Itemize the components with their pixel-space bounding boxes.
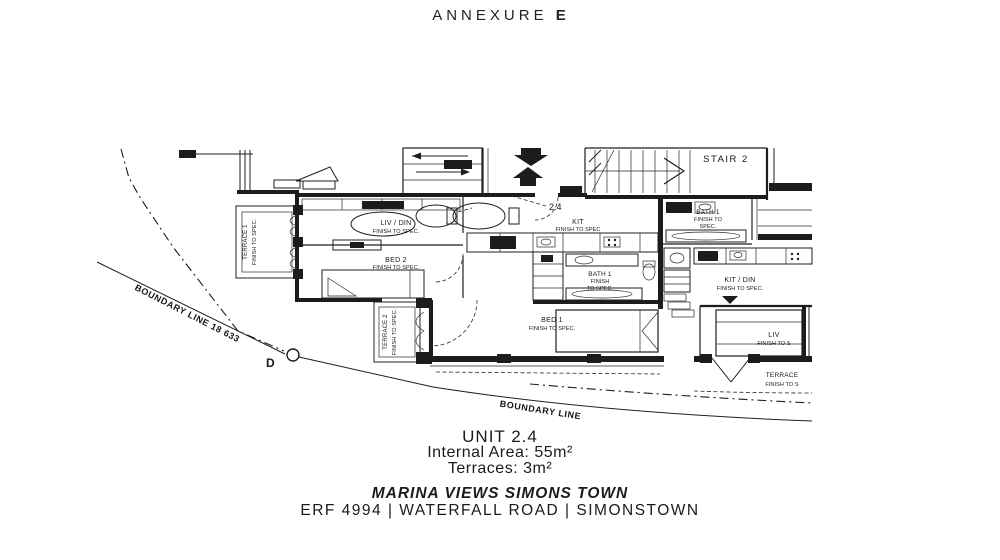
kit-din-label: KIT / DIN [724, 277, 755, 284]
survey-beacon [287, 349, 299, 361]
terrace-1-label: TERRACE 1 [243, 224, 249, 260]
terrace-1-spec: FINISH TO SPEC. [252, 218, 258, 265]
terrace-1: TERRACE 1 FINISH TO SPEC. [236, 205, 303, 279]
unit-summary: UNIT 2.4 Internal Area: 55m² Terraces: 3… [0, 429, 1000, 477]
room-bath-1-main: BATH 1 FINISH TO SPEC. [566, 254, 655, 300]
stair-2-label: STAIR 2 [703, 154, 749, 165]
bed-1-label: BED 1 [541, 317, 563, 324]
stair-2: STAIR 2 [585, 148, 812, 200]
terrace-2: TERRACE 2 FINISH TO SPEC. [374, 298, 432, 364]
hall-dining-table [447, 203, 519, 229]
bed-2-label: BED 2 [385, 257, 407, 264]
bath-1-adj-spec-1: FINISH TO [694, 217, 723, 223]
project-name: MARINA VIEWS SIMONS TOWN [0, 485, 1000, 502]
liv-din-spec: FINISH TO SPEC. [373, 229, 420, 235]
bath-1-adj-label: BATH 1 [696, 209, 720, 216]
liv-adj-spec: FINISH TO S [757, 341, 791, 347]
entry-arrows: 2.4 [505, 148, 562, 212]
kit-din-spec: FINISH TO SPEC. [717, 286, 764, 292]
internal-area: Internal Area: 55m² [0, 445, 1000, 461]
bath-1-main-spec-2: TO SPEC. [587, 286, 614, 292]
unit-number: UNIT 2.4 [0, 429, 1000, 445]
room-bed-1: BED 1 FINISH TO SPEC. [431, 300, 658, 352]
bath-1-adj-spec-2: SPEC. [699, 224, 716, 230]
boundary-line-1-label: BOUNDARY LINE 18 633 [133, 282, 241, 344]
bed-1-spec: FINISH TO SPEC. [529, 326, 576, 332]
site-boundary: D BOUNDARY LINE 18 633 BOUNDARY LINE [97, 149, 812, 421]
beacon-label: D [266, 356, 275, 370]
terrace-adj-label: TERRACE [766, 372, 799, 379]
kit-label: KIT [572, 219, 584, 226]
room-bath-1-adj: BATH 1 FINISH TO SPEC. [663, 199, 812, 244]
room-liv-adj: LIV FINISH TO S [700, 306, 812, 358]
unit-marker-label: 2.4 [549, 202, 562, 212]
terraces-area: Terraces: 3m² [0, 461, 1000, 477]
bath-1-main-label: BATH 1 [588, 271, 612, 278]
stair-1 [403, 148, 488, 196]
bath-1-main-spec-1: FINISH [591, 279, 610, 285]
kit-spec: FINISH TO SPEC [556, 227, 601, 233]
terrace-adj: TERRACE FINISH TO S [694, 354, 812, 393]
outbuilding-walls [179, 150, 338, 194]
terrace-adj-spec: FINISH TO S [765, 382, 799, 388]
liv-adj-label: LIV [768, 332, 779, 339]
boundary-line-2-label: BOUNDARY LINE [499, 399, 582, 422]
room-bed-2: BED 2 FINISH TO SPEC. [322, 257, 424, 298]
liv-din-label: LIV / DIN [380, 220, 411, 227]
terrace-2-spec: FINISH TO SPEC. [392, 308, 398, 355]
project-address: ERF 4994 | WATERFALL ROAD | SIMONSTOWN [0, 502, 1000, 519]
project-footer: MARINA VIEWS SIMONS TOWN ERF 4994 | WATE… [0, 485, 1000, 519]
terrace-2-label: TERRACE 2 [383, 314, 389, 350]
